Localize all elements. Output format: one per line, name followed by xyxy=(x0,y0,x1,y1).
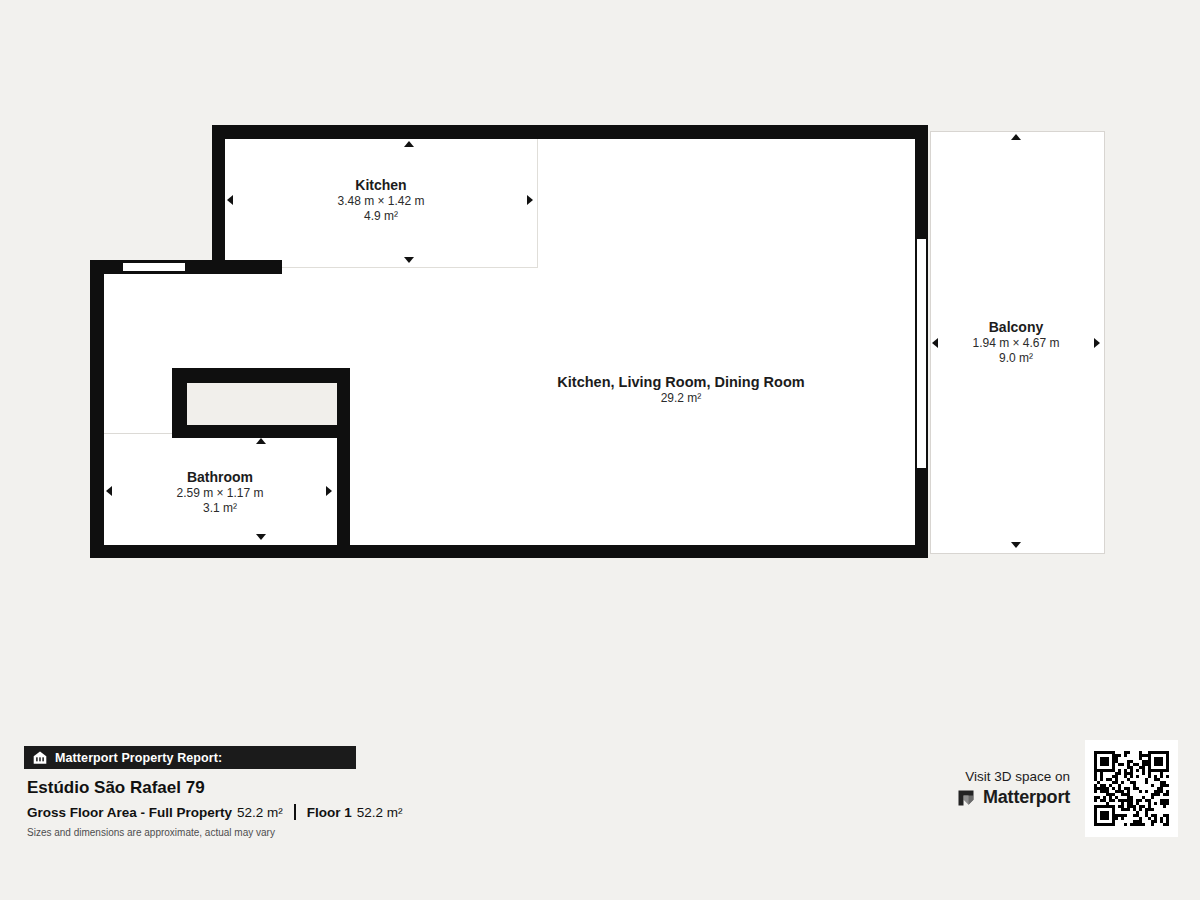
room-label-bathroom: Bathroom 2.59 m × 1.17 m 3.1 m² xyxy=(176,469,263,516)
gross-floor-area-label: Gross Floor Area - Full Property xyxy=(27,805,232,820)
room-label-kitchen: Kitchen 3.48 m × 1.42 m 4.9 m² xyxy=(337,177,424,224)
room-area: 3.1 m² xyxy=(176,501,263,516)
wall-north xyxy=(212,125,928,139)
report-banner: Matterport Property Report: xyxy=(24,746,356,769)
room-dimensions: 3.48 m × 1.42 m xyxy=(337,194,424,209)
room-name: Kitchen xyxy=(337,177,424,194)
property-name: Estúdio São Rafael 79 xyxy=(27,778,205,798)
stats-divider xyxy=(294,804,296,820)
matterport-wordmark: Matterport xyxy=(983,787,1070,808)
matterport-logo-icon xyxy=(956,788,976,808)
house-icon xyxy=(33,751,47,765)
window-west xyxy=(121,261,187,273)
room-area: 9.0 m² xyxy=(972,351,1059,366)
room-area: 4.9 m² xyxy=(337,209,424,224)
floor1-label: Floor 1 xyxy=(307,805,352,820)
qr-code-icon xyxy=(1085,740,1178,837)
wall-bathroom-east xyxy=(337,438,350,558)
closet-interior xyxy=(187,383,337,425)
room-dimensions: 2.59 m × 1.17 m xyxy=(176,486,263,501)
measure-arrow-left-icon xyxy=(932,338,938,348)
matterport-brand: Matterport xyxy=(956,787,1070,808)
measure-arrow-left-icon xyxy=(106,486,112,496)
room-area: 29.2 m² xyxy=(557,391,804,406)
measure-arrow-up-icon xyxy=(404,141,414,147)
floor-area-stats: Gross Floor Area - Full Property 52.2 m²… xyxy=(27,804,403,820)
qr-code-pattern xyxy=(1094,751,1169,826)
wall-south xyxy=(90,545,928,558)
visit-3d-text: Visit 3D space on xyxy=(956,769,1070,784)
measure-arrow-left-icon xyxy=(227,195,233,205)
room-name: Balcony xyxy=(972,319,1059,336)
measure-arrow-down-icon xyxy=(1011,542,1021,548)
wall-kitchen-west xyxy=(212,125,225,274)
measure-arrow-right-icon xyxy=(527,195,533,205)
report-banner-label: Matterport Property Report: xyxy=(55,751,222,765)
room-name: Kitchen, Living Room, Dining Room xyxy=(557,374,804,391)
room-label-balcony: Balcony 1.94 m × 4.67 m 9.0 m² xyxy=(972,319,1059,366)
room-dimensions: 1.94 m × 4.67 m xyxy=(972,336,1059,351)
window-balcony-door xyxy=(915,237,928,470)
wall-west xyxy=(90,260,104,558)
measure-arrow-down-icon xyxy=(404,257,414,263)
room-label-main: Kitchen, Living Room, Dining Room 29.2 m… xyxy=(557,374,804,406)
gross-floor-area-value: 52.2 m² xyxy=(237,805,283,820)
visit-3d-cta: Visit 3D space on Matterport xyxy=(956,769,1070,808)
measure-arrow-right-icon xyxy=(1094,338,1100,348)
property-report-page: Kitchen 3.48 m × 1.42 m 4.9 m² Kitchen, … xyxy=(0,0,1200,900)
measure-arrow-up-icon xyxy=(256,438,266,444)
disclaimer-text: Sizes and dimensions are approximate, ac… xyxy=(27,827,275,838)
measure-arrow-up-icon xyxy=(1011,134,1021,140)
room-name: Bathroom xyxy=(176,469,263,486)
measure-arrow-right-icon xyxy=(326,486,332,496)
measure-arrow-down-icon xyxy=(256,534,266,540)
floor1-value: 52.2 m² xyxy=(357,805,403,820)
